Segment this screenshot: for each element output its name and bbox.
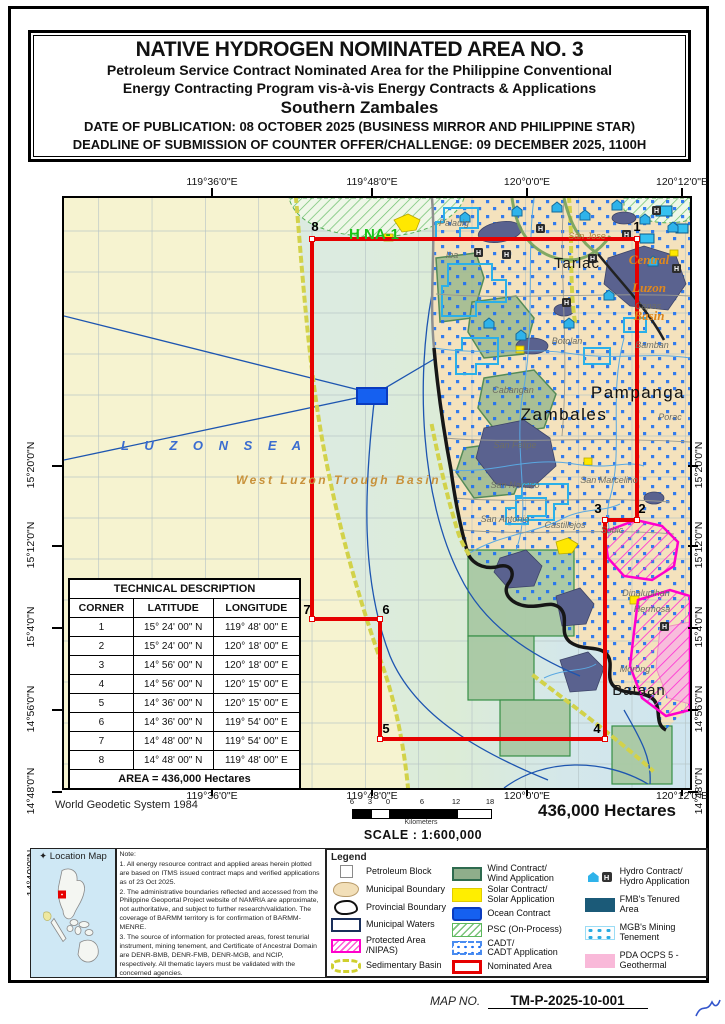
legend-item-municipal-boundary: Municipal Boundary (331, 883, 452, 897)
table-cell: 119° 48' 00" E (213, 751, 300, 770)
table-row: 314° 56' 00" N120° 18' 00" E (69, 656, 300, 675)
legend-label: Protected Area /NIPAS) (366, 936, 426, 955)
table-cell: 7 (69, 732, 133, 751)
scale-bar-number: 0 (386, 797, 390, 806)
map-label: L U Z O N S E A (121, 438, 307, 453)
svg-text:H: H (538, 226, 543, 233)
table-cell: 120° 15' 00" E (213, 675, 300, 694)
notes-panel: Note: 1. All energy resource contract an… (116, 848, 326, 978)
philippines-outline-map (32, 864, 114, 974)
legend-item-mgb: MGB's Mining Tenement (585, 923, 702, 942)
scale-bar-number: 3 (368, 797, 372, 806)
axis-tick (681, 788, 683, 796)
legend-item-pda: PDA OCPS 5 - Geothermal (585, 951, 702, 970)
axis-tick (688, 709, 698, 711)
legend-item-wind: Wind Contract/ Wind Application (452, 864, 584, 883)
publication-date: DATE OF PUBLICATION: 08 OCTOBER 2025 (BU… (40, 118, 679, 136)
datum-label: World Geodetic System 1984 (55, 799, 198, 811)
table-row: 714° 48' 00" N119° 54' 00" E (69, 732, 300, 751)
map-label: Luzon (631, 280, 666, 295)
petroleum-block-swatch (331, 865, 361, 879)
note-2: 2. The administrative boundaries reflect… (120, 889, 322, 933)
legend-label: Municipal Waters (366, 920, 435, 930)
palawan-basin-highlight (43, 912, 51, 921)
legend-item-provincial-boundary: Provincial Boundary (331, 900, 452, 914)
axis-tick (688, 791, 698, 793)
mgb-swatch (585, 926, 615, 940)
legend-column: Petroleum BlockMunicipal BoundaryProvinc… (331, 863, 452, 975)
table-row: 414° 56' 00" N120° 15' 00" E (69, 675, 300, 694)
corner-vertex-7 (310, 617, 315, 622)
table-cell: 119° 54' 00" E (213, 732, 300, 751)
corner-number-5: 5 (382, 721, 389, 736)
coastline-north (432, 198, 434, 348)
legend-column: HHydro Contract/ Hydro ApplicationFMB's … (585, 863, 702, 975)
scale-ratio: SCALE : 1:600,000 (340, 828, 506, 842)
solar-swatch (452, 888, 482, 902)
scale-bar-number: 6 (420, 797, 424, 806)
map-title: NATIVE HYDROGEN NOMINATED AREA NO. 3 (40, 38, 679, 62)
map-subtitle-2: Energy Contracting Program vis-à-vis Ene… (40, 80, 679, 98)
legend-title: Legend (331, 852, 702, 863)
scale-bar-segment (457, 810, 491, 818)
table-cell: 14° 48' 00" N (133, 751, 213, 770)
legend-item-cadt: CADT/ CADT Application (452, 939, 584, 958)
table-cell: 120° 15' 00" E (213, 694, 300, 713)
svg-text:H: H (662, 624, 667, 631)
axis-tick (52, 545, 62, 547)
legend-item-sedimentary-basin: Sedimentary Basin (331, 959, 452, 973)
legend-label: Sedimentary Basin (366, 961, 442, 971)
map-label: Dinalupihan (622, 588, 670, 598)
corner-vertex-4 (603, 737, 608, 742)
axis-tick (681, 188, 683, 196)
axis-label-top: 119°36'0"E (180, 176, 244, 188)
title-block: NATIVE HYDROGEN NOMINATED AREA NO. 3 Pet… (28, 30, 691, 162)
legend-item-ocean: Ocean Contract (452, 907, 584, 921)
legend-label: Solar Contract/ Solar Application (487, 885, 554, 904)
corner-number-1: 1 (633, 219, 640, 234)
note-3: 3. The source of information for protect… (120, 934, 322, 978)
table-cell: 5 (69, 694, 133, 713)
ocean-contract-block (357, 388, 387, 404)
title-block-inner: NATIVE HYDROGEN NOMINATED AREA NO. 3 Pet… (33, 35, 686, 157)
table-cell: 14° 56' 00" N (133, 675, 213, 694)
map-label: Subic (601, 525, 624, 535)
axis-tick (52, 627, 62, 629)
legend-label: PSC (On-Process) (487, 925, 562, 935)
scale-bar-number: 12 (452, 797, 460, 806)
map-label: Bataan (612, 682, 666, 699)
scale-bar-segment (353, 810, 371, 818)
legend-item-municipal-waters: Municipal Waters (331, 918, 452, 932)
map-no-label: MAP NO. (430, 994, 480, 1008)
scale-bar-segment (371, 810, 389, 818)
map-label: Zambales (521, 405, 608, 424)
table-cell: 120° 18' 00" E (213, 637, 300, 656)
pda-swatch (585, 954, 615, 968)
map-area-name: Southern Zambales (40, 97, 679, 118)
axis-label-left: 15°20'0"N (25, 433, 37, 497)
cadt-swatch (452, 941, 482, 955)
table-cell: 6 (69, 713, 133, 732)
table-cell: 4 (69, 675, 133, 694)
axis-label-left: 15°4'0"N (25, 595, 37, 659)
corner-vertex-5 (378, 737, 383, 742)
table-row: 814° 48' 00" N119° 48' 00" E (69, 751, 300, 770)
svg-text:H: H (564, 300, 569, 307)
table-cell: 119° 54' 00" E (213, 713, 300, 732)
map-label: Porac (658, 412, 682, 422)
signature-mark (694, 998, 722, 1020)
map-label: San Marcelino (580, 475, 638, 485)
map-number-block: MAP NO. TM-P-2025-10-001 (430, 993, 690, 1009)
map-label: Palauig (439, 218, 469, 228)
corner-vertex-1 (635, 237, 640, 242)
legend-item-hydro: HHydro Contract/ Hydro Application (585, 867, 702, 886)
submission-deadline: DEADLINE OF SUBMISSION OF COUNTER OFFER/… (40, 136, 679, 154)
legend-label: Hydro Contract/ Hydro Application (620, 867, 690, 886)
axis-tick (526, 788, 528, 796)
total-hectares: 436,000 Hectares (538, 801, 676, 821)
scale-bar (352, 809, 492, 819)
legend-item-solar: Solar Contract/ Solar Application (452, 885, 584, 904)
legend-label: Provincial Boundary (366, 903, 446, 913)
axis-label-top: 120°12'0"E (650, 176, 714, 188)
legend-label: Wind Contract/ Wind Application (487, 864, 554, 883)
axis-tick (211, 188, 213, 196)
map-label: Iba (446, 250, 459, 260)
location-map: ✦ Location Map (30, 848, 116, 978)
map-document-page: NATIVE HYDROGEN NOMINATED AREA NO. 3 Pet… (0, 0, 725, 1024)
map-label: H NA-1 (349, 226, 399, 243)
axis-label-left: 15°12'0"N (25, 513, 37, 577)
municipal-boundary-swatch (331, 883, 361, 897)
axis-tick (52, 709, 62, 711)
table-cell: 15° 24' 00" N (133, 618, 213, 637)
legend-column: Wind Contract/ Wind ApplicationSolar Con… (452, 863, 584, 975)
axis-label-left: 14°56'0"N (25, 677, 37, 741)
map-label: San Antonio (481, 514, 530, 524)
compass-icon: ✦ (39, 851, 47, 862)
table-row: 614° 36' 00" N119° 54' 00" E (69, 713, 300, 732)
corner-number-4: 4 (593, 721, 601, 736)
technical-description-table: TECHNICAL DESCRIPTIONCORNERLATITUDELONGI… (68, 578, 301, 790)
sedimentary-basin-swatch (331, 959, 361, 973)
hydro-house-icon (588, 872, 599, 882)
table-cell: 15° 24' 00" N (133, 637, 213, 656)
psc-swatch (452, 923, 482, 937)
table-cell: LONGITUDE (213, 599, 300, 618)
legend-label: Petroleum Block (366, 867, 432, 877)
axis-tick (371, 188, 373, 196)
corner-vertex-2 (635, 518, 640, 523)
legend-label: Nominated Area (487, 962, 552, 972)
table-cell: 14° 56' 00" N (133, 656, 213, 675)
map-label: Castillejos (544, 520, 586, 530)
legend-panel: Legend Petroleum BlockMunicipal Boundary… (325, 848, 708, 978)
location-map-title: ✦ Location Map (31, 851, 115, 862)
table-cell: TECHNICAL DESCRIPTION (69, 579, 300, 599)
legend-item-nominated: Nominated Area (452, 960, 584, 974)
svg-text:H: H (476, 250, 481, 257)
axis-tick (688, 545, 698, 547)
nominated-swatch (452, 960, 482, 974)
corner-number-6: 6 (382, 602, 389, 617)
corner-vertex-6 (378, 617, 383, 622)
hydro-h-icon: H (602, 872, 612, 882)
fmb-swatch (585, 898, 615, 912)
map-label: Morong (620, 664, 651, 674)
map-label: Cabangan (492, 385, 534, 395)
map-label: Botolan (552, 336, 583, 346)
table-row: 215° 24' 00" N120° 18' 00" E (69, 637, 300, 656)
table-cell: 14° 36' 00" N (133, 713, 213, 732)
table-cell: CORNER (69, 599, 133, 618)
legend-item-protected-area: Protected Area /NIPAS) (331, 936, 452, 955)
table-row: 115° 24' 00" N119° 48' 00" E (69, 618, 300, 637)
axis-tick (688, 627, 698, 629)
corner-number-3: 3 (594, 501, 601, 516)
map-subtitle-1: Petroleum Service Contract Nominated Are… (40, 62, 679, 80)
axis-tick (371, 788, 373, 796)
map-label: San Jose (568, 231, 606, 241)
wind-swatch (452, 867, 482, 881)
map-label: Central (629, 252, 670, 267)
corner-number-2: 2 (638, 501, 645, 516)
protected-area-swatch (331, 939, 361, 953)
legend-label: Ocean Contract (487, 909, 550, 919)
table-cell: AREA = 436,000 Hectares (69, 770, 300, 790)
legend-columns: Petroleum BlockMunicipal BoundaryProvinc… (331, 863, 702, 975)
scale-bar-unit: Kilometers (352, 819, 490, 826)
map-label: Tarlac (554, 255, 600, 272)
corner-number-7: 7 (303, 602, 310, 617)
svg-text:H: H (674, 266, 679, 273)
svg-text:H: H (504, 252, 509, 259)
map-label: Hermosa (634, 604, 671, 614)
table-cell: 120° 18' 00" E (213, 656, 300, 675)
map-label: Capas (635, 301, 662, 311)
corner-vertex-8 (310, 237, 315, 242)
scale-bar-number: 18 (486, 797, 494, 806)
scale-bar-segment (423, 810, 457, 818)
legend-label: FMB's Tenured Area (620, 895, 680, 914)
notes-heading: Note: (120, 851, 322, 860)
legend-item-psc: PSC (On-Process) (452, 923, 584, 937)
map-label: San Felipe (493, 440, 536, 450)
legend-item-petroleum-block: Petroleum Block (331, 865, 452, 879)
legend-label: PDA OCPS 5 - Geothermal (620, 951, 679, 970)
map-label: West Luzon Trough Basin (236, 473, 441, 487)
municipal-waters-swatch (331, 918, 361, 932)
ocean-swatch (452, 907, 482, 921)
axis-label-top: 120°0'0"E (495, 176, 559, 188)
legend-label: CADT/ CADT Application (487, 939, 557, 958)
table-cell: 119° 48' 00" E (213, 618, 300, 637)
axis-label-left: 14°48'0"N (25, 759, 37, 823)
scale-bar-number: 6 (350, 797, 354, 806)
table-cell: 3 (69, 656, 133, 675)
corner-vertex-3 (603, 518, 608, 523)
axis-tick (52, 791, 62, 793)
table-cell: 2 (69, 637, 133, 656)
table-row: 514° 36' 00" N120° 15' 00" E (69, 694, 300, 713)
map-no-value: TM-P-2025-10-001 (488, 993, 648, 1009)
map-label: Pampanga (591, 383, 685, 402)
legend-item-fmb: FMB's Tenured Area (585, 895, 702, 914)
table-cell: 8 (69, 751, 133, 770)
map-label: San Narciso (490, 480, 539, 490)
legend-label: MGB's Mining Tenement (620, 923, 676, 942)
table-cell: LATITUDE (133, 599, 213, 618)
axis-label-top: 119°48'0"E (340, 176, 404, 188)
map-label: Bamban (635, 340, 669, 350)
axis-tick (526, 188, 528, 196)
table-cell: 14° 36' 00" N (133, 694, 213, 713)
provincial-boundary-swatch (331, 900, 361, 914)
corner-number-8: 8 (311, 219, 318, 234)
scale-bar-segment (389, 810, 423, 818)
table-cell: 14° 48' 00" N (133, 732, 213, 751)
hydro-swatch: H (585, 870, 615, 884)
note-1: 1. All energy resource contract and appl… (120, 861, 322, 888)
axis-tick (688, 465, 698, 467)
table-cell: 1 (69, 618, 133, 637)
legend-label: Municipal Boundary (366, 885, 445, 895)
svg-text:H: H (654, 208, 659, 215)
axis-tick (52, 465, 62, 467)
